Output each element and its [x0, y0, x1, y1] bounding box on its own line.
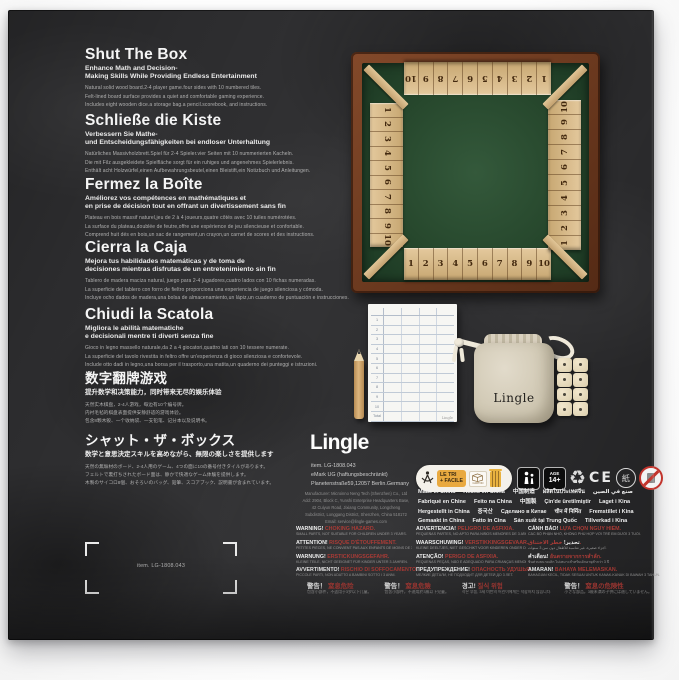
warning-detail: أجزاء صغيرة، غير مناسبة للأطفال دون سن 3…: [528, 546, 660, 551]
company-address: Planetenstraße59,12057 Berlin.Germany: [311, 480, 409, 489]
section-subtitle: 提升数学和决策能力，同时带来无尽的娱乐体验: [85, 389, 365, 397]
tile-number: 4: [381, 150, 391, 156]
tile-number: 1: [408, 259, 414, 269]
number-tile: 2: [370, 117, 403, 132]
game-box-back-panel: Shut The Box Enhance Math and Decision-M…: [8, 10, 654, 640]
number-tile: 7: [448, 62, 463, 95]
bin-icon: [490, 471, 501, 487]
made-in-entry: Laget i Kina: [599, 498, 630, 508]
paper-recycling-icon: 紙: [616, 468, 636, 488]
tile-number: 3: [512, 74, 518, 84]
body-line: Incluye ocho dados de madera,una bolsa d…: [85, 294, 365, 302]
number-tile: 3: [370, 131, 403, 146]
number-tile: 6: [477, 248, 492, 280]
manufacturer-line: Subdistrict, Longgang District, Shenzhen…: [294, 512, 418, 519]
made-in-entry: صنع في الصين: [593, 488, 633, 498]
tile-number: 8: [438, 74, 444, 84]
age-grading-icon: [517, 467, 540, 490]
tile-number: 5: [559, 180, 569, 186]
section-title: Chiudi la Scatola: [85, 306, 365, 323]
number-tile: 8: [548, 129, 581, 144]
scorepad-row: 9: [371, 393, 454, 403]
subtitle-line: decisiones mientras disfrutas de un entr…: [85, 266, 365, 274]
section-title: Fermez la Boîte: [85, 176, 365, 193]
body-line: Gioco in legno massello naturale,da 2 a …: [85, 344, 365, 352]
tile-number: 5: [467, 259, 473, 269]
tile-number: 8: [512, 259, 518, 269]
tile-number: 9: [423, 74, 429, 84]
subtitle-line: Améliorez vos compétences en mathématiqu…: [85, 195, 365, 203]
ce-mark: CE: [589, 470, 613, 486]
scorepad-row: 2: [371, 326, 454, 336]
tile-strip-left: 12345678910: [370, 103, 403, 247]
warning-detail: PETITES PIÈCES, NE CONVIENT PAS AUX ENFA…: [296, 546, 412, 551]
number-tile: 8: [370, 204, 403, 219]
row-label: 7: [371, 374, 384, 383]
manufacturer-line: 42 Cuiyun Road, Jixiang Community, Longc…: [294, 505, 418, 512]
warning-entry: WAARSCHUWING! VERSTIKKINGSGEVAAR. KLEINE…: [416, 540, 526, 551]
tile-number: 1: [541, 74, 547, 84]
section-subtitle: Verbessern Sie Mathe-und Entscheidungsfä…: [85, 131, 365, 146]
number-tile: 10: [536, 248, 551, 280]
age-14-badge: AGE 14+: [543, 467, 566, 490]
tile-number: 9: [381, 223, 391, 229]
section-subtitle: Enhance Math and Decision-Making Skills …: [85, 65, 365, 80]
section-title: Cierra la Caja: [85, 239, 365, 256]
rope-tassel: [459, 348, 465, 362]
manufacturer-line: Email: service@lingle-games.com: [294, 519, 418, 526]
tile-number: 3: [559, 210, 569, 216]
box-edge-highlight: [651, 10, 654, 640]
tile-number: 6: [482, 259, 488, 269]
section-german: Schließe die Kiste Verbessern Sie Mathe-…: [85, 112, 365, 175]
row-label: 3: [371, 335, 384, 344]
scorepad-grid: 1 2 3 4 5 6 7: [371, 316, 454, 422]
number-tile: 6: [463, 62, 478, 95]
row-label: 9: [371, 393, 384, 402]
body-line: Felt-lined board surface provides a quie…: [85, 93, 365, 101]
number-tile: 6: [370, 175, 403, 190]
made-in-entry: चीन में निर्मित: [555, 508, 582, 518]
brand-info: item. LG-1808.043 eMark UG (haftungsbesc…: [311, 462, 409, 489]
tile-number: 9: [526, 259, 532, 269]
section-french: Fermez la Boîte Améliorez vos compétence…: [85, 176, 365, 239]
rope-tassel: [452, 346, 458, 362]
tile-number: 10: [560, 101, 570, 113]
scorepad-row: 3: [371, 335, 454, 345]
made-in-grid: Made in ChinaHecho en China中国制造ผลิตในประ…: [418, 488, 666, 527]
subtitle-line: Verbessern Sie Mathe-: [85, 131, 365, 139]
tile-number: 3: [381, 136, 391, 142]
warning-entry: WARNING! CHOKING HAZARD. SMALL PARTS, NO…: [296, 526, 412, 537]
subtitle-line: en prise de décision tout en offrant un …: [85, 203, 365, 211]
subtitle-line: Migliora le abilità matematiche: [85, 325, 365, 333]
body-line: Natürliches Massivholzbrett.Spiel für 2-…: [85, 150, 365, 158]
number-tile: 7: [370, 189, 403, 204]
made-in-entry: 중국산: [478, 508, 493, 518]
number-tile: 4: [548, 190, 581, 205]
manufacturer-line: Manufacturer: Microinno Neng Tech (Shenz…: [294, 491, 418, 498]
brand-logo: Lingle: [310, 431, 369, 455]
tile-number: 3: [438, 259, 444, 269]
number-tile: 3: [508, 62, 523, 95]
section-spanish: Cierra la Caja Mejora tus habilidades ma…: [85, 239, 365, 302]
made-in-entry: Made in China: [418, 488, 455, 498]
subtitle-line: Enhance Math and Decision-: [85, 65, 365, 73]
made-in-entry: Feito na China: [474, 498, 512, 508]
made-in-row: Hergestellt in China중국산Сделано в Китаеची…: [418, 508, 666, 518]
number-tile: 1: [404, 248, 418, 280]
made-in-row: Fabriqué en ChineFeito na China中国製Çin'de…: [418, 498, 666, 508]
number-tile: 9: [370, 218, 403, 233]
number-tile: 8: [507, 248, 522, 280]
tile-number: 4: [497, 74, 503, 84]
body-line: Includes eight wooden dice.a storage bag…: [85, 101, 365, 109]
body-line: 包含8颗木骰、一个收纳袋、一支铅笔、记分本以及说明书。: [85, 417, 365, 425]
made-in-entry: 中国製: [520, 498, 537, 508]
pencil-body: [354, 361, 364, 419]
body-line: La superficie del tavolo rivestita in fe…: [85, 353, 365, 361]
number-tile: 7: [548, 144, 581, 159]
number-tile: 4: [447, 248, 462, 280]
row-label: 6: [371, 364, 384, 373]
subtitle-line: Mejora tus habilidades matemáticas y de …: [85, 258, 365, 266]
section-chinese: 数字翻牌游戏 提升数学和决策能力，同时带来无尽的娱乐体验 天然实木棋盘，2-4人…: [85, 371, 365, 426]
number-tile: 4: [493, 62, 508, 95]
warning-entry: ATTENTION! RISQUE D'ÉTOUFFEMENT. PETITES…: [296, 540, 412, 551]
number-tile: 3: [433, 248, 448, 280]
number-tile: 5: [370, 160, 403, 175]
section-body: Gioco in legno massello naturale,da 2 a …: [85, 344, 365, 369]
crop-corner: [223, 542, 237, 556]
scorepad-photo: 1 2 3 4 5 6 7: [368, 304, 457, 422]
die: [573, 373, 588, 387]
section-subtitle: Migliora le abilità matematichee decisio…: [85, 325, 365, 340]
row-label: 4: [371, 345, 384, 354]
tile-number: 2: [381, 121, 391, 127]
section-subtitle: Mejora tus habilidades matemáticas y de …: [85, 258, 365, 273]
section-body: 天然实木棋盘，2-4人游戏，每边有10个编号牌。内衬毛毡的棋盘表面提供安静舒适的…: [85, 401, 365, 426]
die: [573, 402, 588, 416]
certification-icons: AGE 14+ ♻ CE 紙: [517, 466, 663, 490]
section-body: Natural solid wood board.2-4 player game…: [85, 84, 365, 109]
section-body: Natürliches Massivholzbrett.Spiel für 2-…: [85, 150, 365, 175]
made-in-entry: Hergestellt in China: [418, 508, 470, 518]
scorepad-header: [371, 308, 454, 316]
tri-line2: + FACILE: [440, 479, 463, 485]
die: [557, 358, 572, 372]
row-label: 10: [371, 402, 384, 411]
subtitle-line: Making Skills While Providing Endless En…: [85, 73, 365, 81]
section-title: Schließe die Kiste: [85, 112, 365, 129]
warning-detail: CÁC BỘ PHẬN NHỎ, KHÔNG PHÙ HỢP VỚI TRẺ E…: [528, 532, 660, 537]
die: [573, 358, 588, 372]
made-in-entry: Hecho en China: [463, 488, 505, 498]
scorepad-row: 4: [371, 345, 454, 355]
tile-number: 7: [452, 74, 458, 84]
tile-number: 10: [538, 259, 550, 269]
scorepad-row: 6: [371, 364, 454, 374]
section-title: 数字翻牌游戏: [85, 371, 365, 387]
number-tile: 9: [521, 248, 536, 280]
warning-detail: SMALL PARTS, NOT SUITABLE FOR CHILDREN U…: [296, 532, 412, 537]
number-tile: 7: [492, 248, 507, 280]
number-tile: 10: [404, 62, 419, 95]
body-line: 天然实木棋盘，2-4人游戏，每边有10个编号牌。: [85, 401, 365, 409]
body-line: La superficie del tablero con forro de f…: [85, 286, 365, 294]
subtitle-line: 提升数学和决策能力，同时带来无尽的娱乐体验: [85, 389, 365, 397]
number-tile: 8: [434, 62, 449, 95]
number-tile: 4: [370, 146, 403, 161]
tile-number: 8: [559, 134, 569, 140]
le-tri-facile-label: LE TRI + FACILE: [437, 470, 466, 487]
body-line: Natural solid wood board.2-4 player game…: [85, 84, 365, 92]
manufacturer-line: Add: 2904, Block C, Yunshi Enterprise He…: [294, 498, 418, 505]
body-line: Tablero de madera maciza natural, juego …: [85, 277, 365, 285]
warning-entry: ADVERTENCIA! PELIGRO DE ASFIXIA. PEQUEÑA…: [416, 526, 526, 537]
number-tile: 3: [548, 205, 581, 220]
carton-label: CARTON: [472, 482, 483, 485]
row-label: 8: [371, 383, 384, 392]
section-body: Tablero de madera maciza natural, juego …: [85, 277, 365, 302]
die: [557, 388, 572, 402]
tile-strip-bottom: 12345678910: [404, 248, 551, 280]
carton-icon: CARTON: [469, 471, 487, 487]
warning-title: ATTENTION!: [296, 540, 328, 546]
die: [557, 402, 572, 416]
tile-number: 1: [559, 240, 569, 246]
tile-number: 6: [381, 179, 391, 185]
slate-shadow-overlay: [8, 555, 654, 640]
tile-number: 7: [497, 259, 503, 269]
warning-detail: PEQUEÑAS PARTES, NO APTO PARA NIÑOS MENO…: [416, 532, 526, 537]
warning-title: WAARSCHUWING!: [416, 540, 463, 546]
made-in-entry: Çin'de üretilmiştir: [544, 498, 591, 508]
made-in-entry: 中国制造: [513, 488, 535, 498]
tile-number: 4: [559, 195, 569, 201]
number-tile: 5: [462, 248, 477, 280]
dice-photo: [557, 358, 588, 416]
recycle-icon: ♻: [569, 469, 586, 488]
made-in-entry: Fabriqué en Chine: [418, 498, 466, 508]
row-label: 2: [371, 326, 384, 335]
tile-number: 10: [405, 74, 417, 84]
number-tile: 9: [419, 62, 434, 95]
pencil-lead: [358, 349, 361, 354]
company-name: eMark UG (haftungsbeschränkt): [311, 471, 409, 480]
number-tile: 2: [418, 248, 433, 280]
crop-corner: [85, 542, 99, 556]
body-line: 内衬毛毡的棋盘表面提供安静舒适的游戏体验。: [85, 409, 365, 417]
section-title: Shut The Box: [85, 46, 365, 63]
tile-number: 7: [559, 149, 569, 155]
tile-strip-top: 12345678910: [404, 62, 551, 95]
pencil-photo: [354, 349, 364, 419]
body-line: Enthält acht Holzwürfel,einen Aufbewahru…: [85, 167, 365, 175]
subtitle-line: e decisionali mentre ti diverti senza fi…: [85, 333, 365, 341]
die: [573, 388, 588, 402]
number-tile: 9: [548, 114, 581, 129]
tile-number: 5: [381, 165, 391, 171]
triman-icon: [421, 471, 434, 486]
tile-number: 2: [423, 259, 429, 269]
section-body: Plateau en bois massif naturel,jeu de 2 …: [85, 214, 365, 239]
tile-number: 9: [559, 119, 569, 125]
number-tile: 6: [548, 159, 581, 174]
row-label: 5: [371, 354, 384, 363]
scorepad-brand: Lingle: [442, 416, 453, 420]
body-line: La surface du plateau,doublée de feutre,…: [85, 223, 365, 231]
tile-number: 8: [381, 208, 391, 214]
scorepad-row: 1: [371, 316, 454, 326]
made-in-entry: ผลิตในประเทศจีน: [543, 488, 585, 498]
warning-title: تحذير!: [564, 540, 580, 546]
game-board-photo: 12345678910 12345678910 12345678910 1098…: [351, 52, 600, 293]
storage-bag-photo: Lingle: [470, 330, 558, 423]
subtitle-line: und Entscheidungsfähigkeiten bei endlose…: [85, 139, 365, 147]
tile-number: 6: [467, 74, 473, 84]
item-number: item. LG-1808.043: [311, 462, 409, 471]
number-tile: 2: [548, 220, 581, 235]
tile-number: 2: [526, 74, 532, 84]
section-subtitle: Améliorez vos compétences en mathématiqu…: [85, 195, 365, 210]
tile-number: 5: [482, 74, 488, 84]
body-line: Include otto dadi in legno,una borsa per…: [85, 361, 365, 369]
tile-number: 2: [559, 225, 569, 231]
scorepad-row: 7: [371, 374, 454, 384]
made-in-row: Made in ChinaHecho en China中国制造ผลิตในประ…: [418, 488, 666, 498]
number-tile: 2: [522, 62, 537, 95]
row-label: 1: [371, 316, 384, 325]
product-photo: Shut The Box Enhance Math and Decision-M…: [0, 0, 679, 680]
row-label: Total: [371, 412, 384, 421]
warning-hazard: RISQUE D'ÉTOUFFEMENT.: [329, 540, 396, 546]
number-tile: 1: [537, 62, 551, 95]
die: [557, 373, 572, 387]
section-italian: Chiudi la Scatola Migliora le abilità ma…: [85, 306, 365, 369]
age-value: 14+: [549, 477, 561, 484]
section-english: Shut The Box Enhance Math and Decision-M…: [85, 46, 365, 109]
warning-hazard: VERSTIKKINGSGEVAAR.: [465, 540, 528, 546]
made-in-entry: Fremstillet i Kina: [589, 508, 633, 518]
body-line: Plateau en bois massif naturel,jeu de 2 …: [85, 214, 365, 222]
scorepad-row: 5: [371, 354, 454, 364]
warning-entry: CẢNH BÁO! LỰA CHỌN NGUY HIỂM. CÁC BỘ PHẬ…: [528, 526, 660, 537]
bag-body: Lingle: [474, 343, 554, 423]
scorepad-row: 8: [371, 383, 454, 393]
body-line: Die mit Filz ausgekleidete Spielfläche s…: [85, 159, 365, 167]
tile-number: 10: [382, 234, 392, 246]
warning-detail: KLEINE DEELTJES, NIET GESCHIKT VOOR KIND…: [416, 546, 526, 551]
tile-number: 7: [381, 194, 391, 200]
tile-number: 4: [452, 259, 458, 269]
tile-number: 6: [559, 164, 569, 170]
scorepad-row: 10: [371, 402, 454, 412]
tile-strip-right: 10987654321: [548, 100, 581, 250]
bag-brand-label: Lingle: [474, 391, 554, 405]
tile-number: 1: [381, 107, 391, 113]
number-tile: 5: [478, 62, 493, 95]
manufacturer-info: Manufacturer: Microinno Neng Tech (Shenz…: [294, 491, 418, 526]
made-in-entry: Сделано в Китае: [501, 508, 547, 518]
number-tile: 5: [548, 174, 581, 189]
warning-entry: تحذير! خطر الاختناق. أجزاء صغيرة، غير من…: [528, 540, 660, 551]
